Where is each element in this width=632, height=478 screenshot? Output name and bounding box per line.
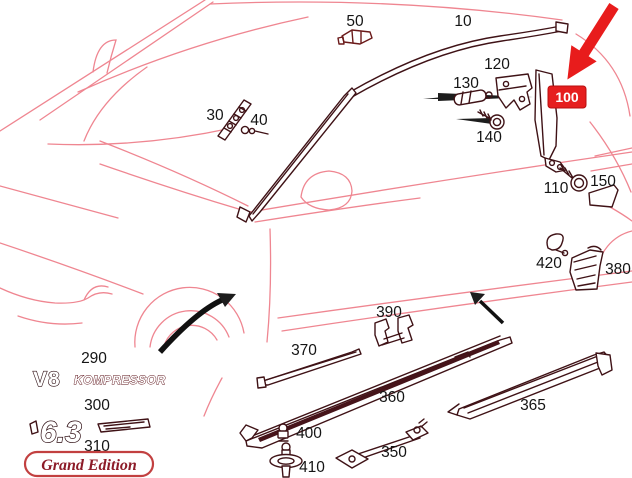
part-label-150[interactable]: 150 [590, 173, 616, 190]
part-100-pillar-trim[interactable] [535, 70, 566, 172]
badge-six-three-text: 6.3 [40, 416, 82, 449]
part-label-50[interactable]: 50 [346, 13, 364, 30]
part-120-bracket[interactable] [496, 74, 532, 110]
part-label-40[interactable]: 40 [250, 112, 268, 129]
part-label-10[interactable]: 10 [454, 13, 472, 30]
direction-arrow-front [160, 293, 236, 352]
part-420-clip[interactable] [547, 234, 568, 256]
part-label-360[interactable]: 360 [379, 389, 405, 406]
badge-kompressor-text: KOMPRESSOR [74, 373, 166, 387]
part-label-130[interactable]: 130 [453, 75, 479, 92]
part-label-410[interactable]: 410 [299, 459, 325, 476]
part-label-400[interactable]: 400 [296, 425, 322, 442]
part-label-300[interactable]: 300 [84, 397, 110, 414]
badge-v8-text: V8 [33, 368, 61, 391]
part-label-290[interactable]: 290 [81, 350, 107, 367]
highlight-part-number[interactable]: 100 [548, 86, 586, 108]
side-mirror [301, 171, 352, 210]
part-380-bracket[interactable] [570, 246, 603, 290]
part-label-390[interactable]: 390 [376, 304, 402, 321]
part-label-120[interactable]: 120 [484, 56, 510, 73]
part-label-365[interactable]: 365 [520, 397, 546, 414]
part-label-370[interactable]: 370 [291, 342, 317, 359]
part-label-140[interactable]: 140 [476, 129, 502, 146]
part-label-350[interactable]: 350 [381, 444, 407, 461]
part-label-380[interactable]: 380 [605, 261, 631, 278]
direction-arrow-rear [470, 292, 503, 323]
part-50-clip[interactable] [338, 30, 372, 44]
highlight-label: 100 [555, 89, 579, 105]
parts-diagram-canvas: 100 105030401201301401101504203802903003… [0, 0, 632, 478]
part-400-clip[interactable] [278, 424, 288, 441]
badge-grand-edition-text: Grand Edition [41, 457, 137, 474]
part-label-110[interactable]: 110 [544, 180, 569, 197]
part-410-rivet[interactable] [270, 443, 302, 477]
part-label-420[interactable]: 420 [536, 255, 562, 272]
badge-grand-edition[interactable]: Grand Edition [25, 452, 153, 476]
badge-v8-kompressor[interactable]: V8 KOMPRESSOR [33, 368, 166, 391]
part-label-30[interactable]: 30 [206, 107, 224, 124]
a-pillar-moulding[interactable] [237, 88, 356, 222]
